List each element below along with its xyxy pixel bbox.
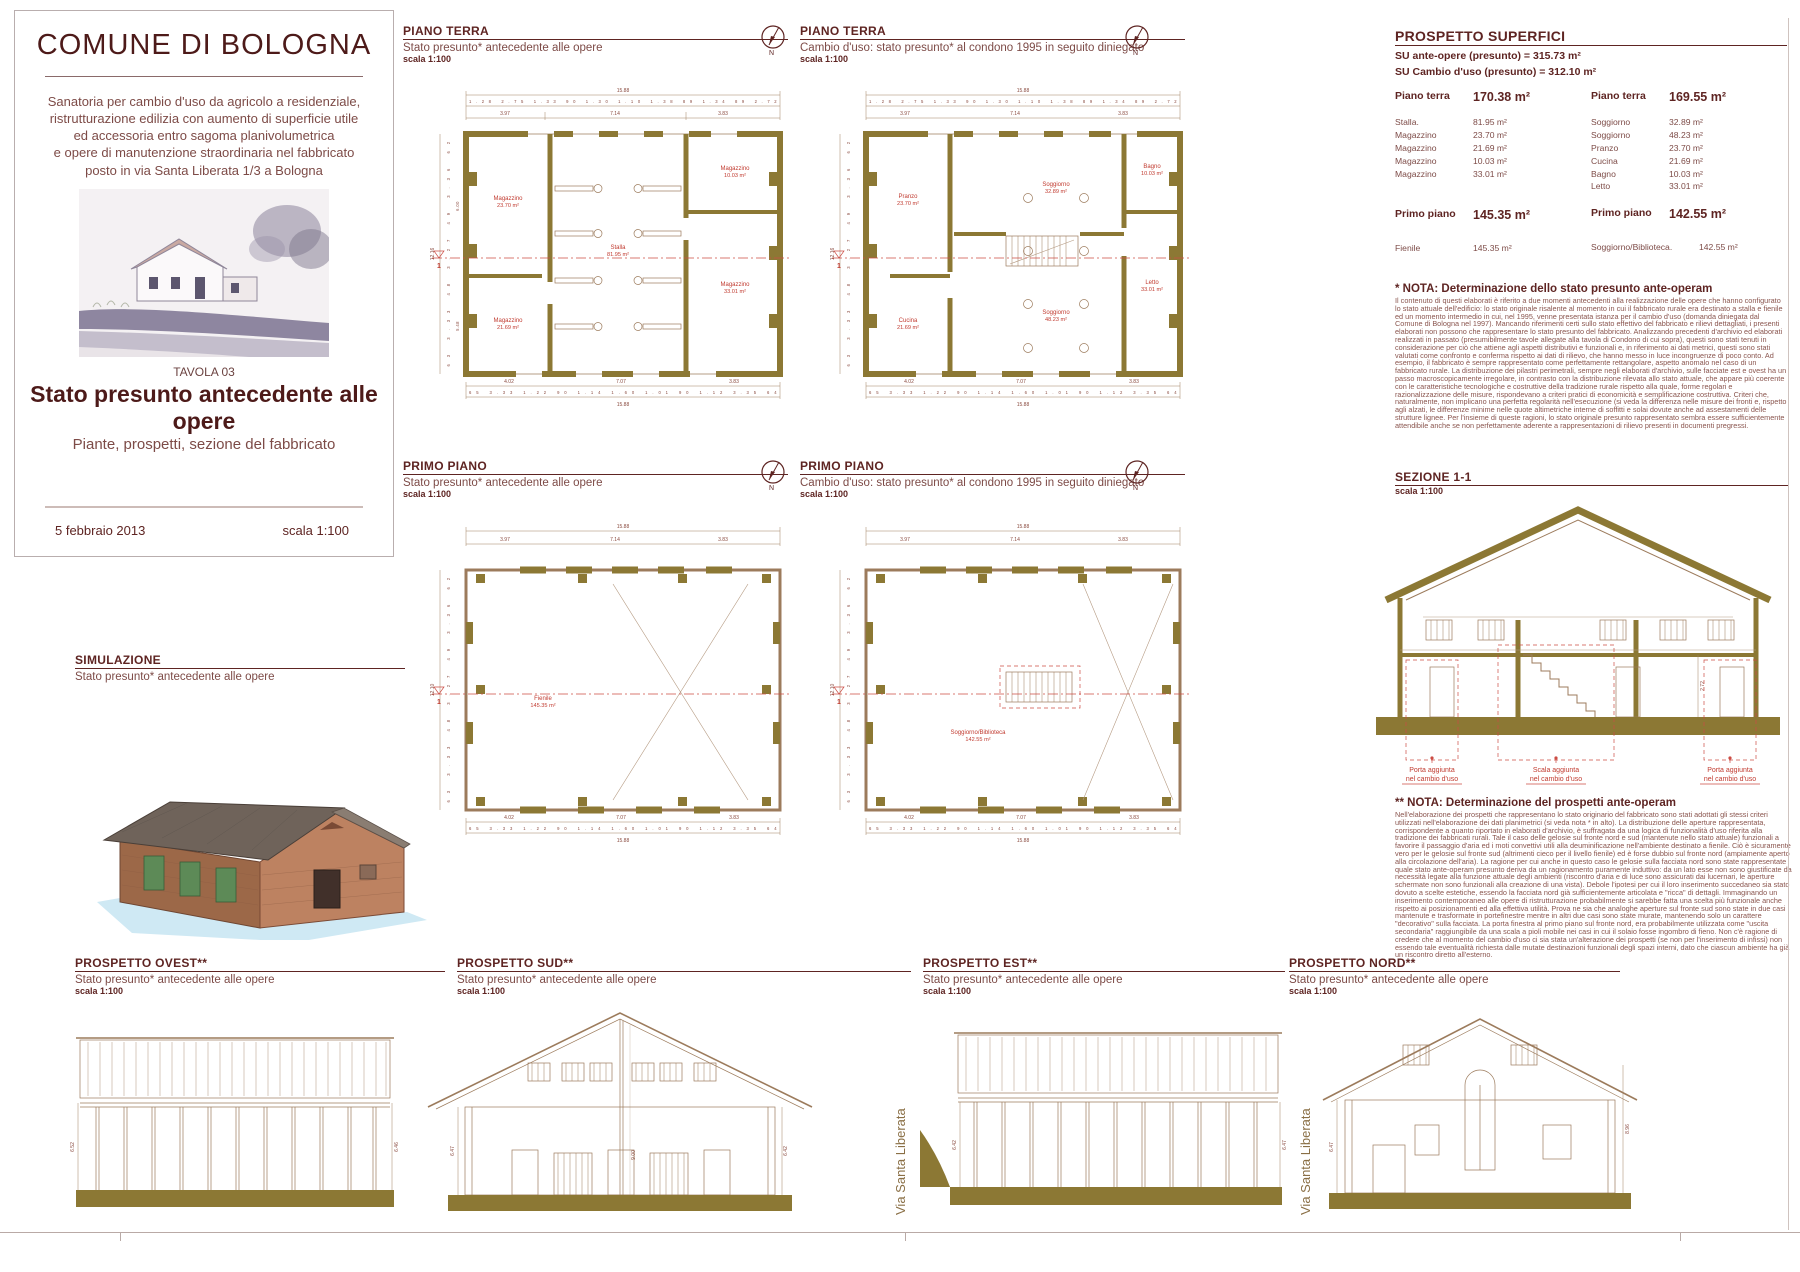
svg-text:N: N [1133,485,1138,491]
section-cut-line: 1 [832,687,1189,706]
gelosie-windows [528,1063,716,1081]
svg-text:32.89 m²: 32.89 m² [1045,189,1067,195]
svg-text:5.48: 5.48 [455,321,460,331]
svg-text:65 3.33 1.22 90 1.14: 65 3.33 1.22 90 1.14 1.60 1.01 90 1.12 3… [469,390,777,395]
svg-text:4.02: 4.02 [904,379,914,385]
svg-text:21.69 m²: 21.69 m² [897,325,919,331]
panel-header-piano-terra-a: PIANO TERRA Stato presunto* antecedente … [403,24,788,64]
svg-text:3.83: 3.83 [718,111,728,117]
svg-text:Soggiorno: Soggiorno [1042,310,1070,316]
svg-text:33.01 m²: 33.01 m² [1141,287,1163,293]
svg-text:Magazzino: Magazzino [493,318,523,324]
svg-text:15.88: 15.88 [1017,838,1030,844]
footer-divider [45,506,363,508]
stair-added [1000,666,1080,708]
svg-text:6.47: 6.47 [450,1146,456,1156]
elevation-nord-drawing: 6.47 8.96 [1315,1005,1645,1220]
svg-text:1: 1 [837,263,841,270]
svg-text:8.96: 8.96 [1625,1124,1631,1134]
svg-text:Stalla: Stalla [610,245,626,251]
svg-text:4.02: 4.02 [504,815,514,821]
svg-text:15.88: 15.88 [617,88,630,94]
svg-text:Bagno: Bagno [1143,164,1161,170]
svg-text:15.88: 15.88 [617,402,630,408]
roof-band [954,1033,1282,1102]
title-divider [45,76,363,77]
nota-stato-presunto: * NOTA: Determinazione dello stato presu… [1395,283,1788,430]
svg-text:7.07: 7.07 [1016,379,1026,385]
sheet-date: 5 febbraio 2013 [55,523,145,538]
svg-text:6.00: 6.00 [455,201,460,211]
svg-text:145.35 m²: 145.35 m² [530,703,555,709]
svg-text:63 3.33 48 3.27 49 3: 63 3.33 48 3.27 49 3.36 62 [846,141,851,366]
svg-text:3.83: 3.83 [1129,815,1139,821]
svg-text:4.02: 4.02 [504,379,514,385]
panel-header-prospetto-est: PROSPETTO EST** Stato presunto* antecede… [923,956,1285,996]
dim-272: 2.72 [1698,655,1706,717]
svg-text:nel cambio d'uso: nel cambio d'uso [1406,776,1458,783]
svg-text:10.03 m²: 10.03 m² [1141,171,1163,177]
svg-text:6.47: 6.47 [1282,1140,1288,1150]
svg-text:65 3.33 1.22 90 1.14: 65 3.33 1.22 90 1.14 1.60 1.01 90 1.12 3… [869,826,1177,831]
svg-text:3.83: 3.83 [729,815,739,821]
doors-section [1430,667,1744,717]
dims: 6.42 6.47 [952,1102,1288,1187]
svg-text:Soggiorno: Soggiorno [1042,182,1070,188]
svg-text:N: N [1133,50,1138,56]
svg-text:Magazzino: Magazzino [720,166,750,172]
svg-text:N: N [769,50,774,56]
superfici-right-column: Piano terra169.55 m² Soggiorno32.89 m² S… [1591,90,1787,255]
elevation-ovest-drawing: 6.52 6.46 [70,1005,400,1220]
svg-text:3.97: 3.97 [500,111,510,117]
sheet-subtitle: Piante, prospetti, sezione del fabbricat… [15,436,393,453]
ground-fill [950,1187,1282,1205]
svg-text:3.83: 3.83 [1129,379,1139,385]
elevation-sud-drawing: 6.47 9.00 6.42 [420,1005,820,1220]
superfici-left-column: Piano terra170.38 m² Stalla.81.95 m² Mag… [1395,90,1591,255]
svg-text:15.88: 15.88 [1017,402,1030,408]
room-labels: Soggiorno/Biblioteca 142.55 m² [950,730,1006,743]
doors-windows [512,1150,730,1195]
panel-header-sezione: SEZIONE 1-1 scala 1:100 [1395,470,1788,496]
roof-brace-x [1083,584,1173,800]
added-elements-annotations: Porta aggiunta nel cambio d'uso Scala ag… [1402,645,1760,784]
svg-text:3.97: 3.97 [900,111,910,117]
plan-primo-piano-cambio-duso: 15.88 3.97 7.14 3.83 12.10 63 3.33 48 3.… [828,522,1193,844]
svg-text:Pranzo: Pranzo [898,194,918,200]
svg-text:3.83: 3.83 [1118,111,1128,117]
columns [96,1107,376,1190]
simulazione-header: SIMULAZIONE Stato presunto* antecedente … [75,653,405,683]
svg-text:3.83: 3.83 [729,379,739,385]
north-arrow-icon: N [760,24,786,56]
ground-fill [448,1195,792,1211]
street-label-via-santa-liberata: Via Santa Liberata [1298,1108,1313,1215]
svg-text:Porta aggiunta: Porta aggiunta [1707,767,1753,774]
section-drawing: 2.72 Porta aggiunta nel cambio d'uso Sca… [1368,495,1788,790]
gelosie-windows [1426,620,1734,640]
plan-piano-terra-cambio-duso: 15.88 1.28 2.75 1.33 90 1.30 1.10 1.38 8… [828,86,1193,408]
svg-text:9.00: 9.00 [631,1150,637,1160]
ground-fill [1376,717,1780,735]
svg-text:4.02: 4.02 [904,815,914,821]
svg-text:15.88: 15.88 [1017,524,1030,530]
svg-text:Soggiorno/Biblioteca: Soggiorno/Biblioteca [950,730,1006,736]
svg-text:nel cambio d'uso: nel cambio d'uso [1530,776,1582,783]
columns [974,1102,1257,1187]
svg-text:6.47: 6.47 [1329,1142,1335,1152]
north-arrow-icon: N [760,459,786,491]
walls [466,567,780,814]
svg-text:48.23 m²: 48.23 m² [1045,317,1067,323]
svg-text:1: 1 [437,263,441,270]
panel-header-primo-piano-a: PRIMO PIANO Stato presunto* antecedente … [403,459,788,499]
svg-text:15.88: 15.88 [1017,88,1030,94]
svg-text:23.70 m²: 23.70 m² [897,201,919,207]
svg-text:Cucina: Cucina [899,318,918,324]
sheet-tick [1680,1233,1681,1241]
road-ramp [920,1130,950,1187]
svg-text:Letto: Letto [1145,280,1159,286]
section-cut-line: 1 [432,687,789,706]
svg-text:Porta aggiunta: Porta aggiunta [1409,767,1455,774]
svg-text:N: N [769,485,774,491]
svg-text:Scala aggiunta: Scala aggiunta [1533,767,1579,774]
dims: 6.47 9.00 6.42 [450,1025,789,1195]
tavola-number: TAVOLA 03 [15,365,393,379]
sheet-bottom-border [0,1232,1800,1233]
svg-text:7.07: 7.07 [616,815,626,821]
svg-text:6.46: 6.46 [394,1142,400,1152]
street-label-via-santa-liberata: Via Santa Liberata [893,1108,908,1215]
panel-header-prospetto-nord: PROSPETTO NORD** Stato presunto* anteced… [1289,956,1620,996]
svg-text:1: 1 [837,699,841,706]
svg-text:nel cambio d'uso: nel cambio d'uso [1704,776,1756,783]
north-arrow-icon: N [1124,459,1150,491]
svg-text:7.14: 7.14 [1010,111,1020,117]
svg-text:1.28 2.75 1.33 90 1.30: 1.28 2.75 1.33 90 1.30 1.10 1.38 89 1.34… [469,99,777,104]
structural-columns [1024,194,1089,353]
sheet-right-border [1788,18,1789,1230]
sheet-main-title: Stato presunto antecedente alle opere [21,381,387,435]
room-labels: Fienile 145.35 m² [530,696,555,709]
svg-text:Magazzino: Magazzino [720,282,750,288]
svg-text:15.88: 15.88 [617,524,630,530]
openings [1373,1070,1571,1193]
svg-text:7.14: 7.14 [610,537,620,543]
svg-text:142.55 m²: 142.55 m² [965,737,990,743]
north-arrow-icon: N [1124,24,1150,56]
sheet-tick [120,1233,121,1241]
dims: 6.52 6.46 [70,1103,400,1190]
ground-fill [76,1190,394,1207]
stair [1006,236,1078,266]
svg-text:10.03 m²: 10.03 m² [724,173,746,179]
plan-piano-terra-stato-presunto: 15.88 1.28 2.75 1.33 90 1.30 1.10 1.38 8… [428,86,793,408]
simulation-render-image [92,690,437,940]
svg-text:Fienile: Fienile [534,696,552,702]
walls [866,129,1180,379]
svg-text:63 3.33 48 3.27 49 3: 63 3.33 48 3.27 49 3.36 62 [846,577,851,802]
plan-primo-piano-stato-presunto: 15.88 3.97 7.14 3.83 12.10 63 3.33 48 3.… [428,522,793,844]
drawing-sheet: COMUNE DI BOLOGNA Sanatoria per cambio d… [0,0,1800,1272]
svg-text:7.07: 7.07 [1016,815,1026,821]
room-labels: Magazzino 23.70 m² Magazzino 21.69 m² St… [493,166,750,331]
svg-text:21.69 m²: 21.69 m² [497,325,519,331]
prospetto-superfici-table: PROSPETTO SUPERFICI SU ante-opere (presu… [1395,28,1787,255]
ground-fill [1329,1193,1631,1209]
title-block: COMUNE DI BOLOGNA Sanatoria per cambio d… [14,10,394,557]
sheet-title: COMUNE DI BOLOGNA [23,29,385,62]
svg-text:6.52: 6.52 [70,1142,76,1152]
roof-band [76,1038,394,1107]
sheet-scale: scala 1:100 [283,523,350,538]
svg-text:3.83: 3.83 [718,537,728,543]
svg-text:7.14: 7.14 [1010,537,1020,543]
elevation-est-drawing: 6.42 6.47 [920,1005,1290,1220]
svg-text:6.42: 6.42 [783,1146,789,1156]
roof-brace-x [613,584,748,800]
svg-text:3.97: 3.97 [900,537,910,543]
svg-text:6.42: 6.42 [952,1140,958,1150]
sheet-tick [905,1233,906,1241]
walls [465,1019,775,1195]
svg-text:63 3.33 48 3.27 49 3: 63 3.33 48 3.27 49 3.36 62 [446,141,451,366]
svg-text:63 3.33 48 3.27 49 3: 63 3.33 48 3.27 49 3.36 62 [446,577,451,802]
svg-text:65 3.33 1.22 90 1.14: 65 3.33 1.22 90 1.14 1.60 1.01 90 1.12 3… [469,826,777,831]
roof [1386,510,1770,600]
svg-text:33.01 m²: 33.01 m² [724,289,746,295]
svg-text:3.83: 3.83 [1118,537,1128,543]
structure [1400,598,1756,717]
project-description: Sanatoria per cambio d'uso da agricolo a… [29,93,379,179]
svg-text:7.14: 7.14 [610,111,620,117]
svg-text:15.88: 15.88 [617,838,630,844]
svg-text:1: 1 [437,699,441,706]
svg-text:23.70 m²: 23.70 m² [497,203,519,209]
panel-header-prospetto-ovest: PROSPETTO OVEST** Stato presunto* antece… [75,956,445,996]
panel-header-prospetto-sud: PROSPETTO SUD** Stato presunto* antecede… [457,956,911,996]
svg-text:2.72: 2.72 [1700,681,1706,691]
svg-text:Magazzino: Magazzino [493,196,523,202]
section-cut-line: 1 [832,251,1189,270]
stair-section [1523,655,1595,717]
nota-prospetti: ** NOTA: Determinazione del prospetti an… [1395,797,1795,959]
svg-text:3.97: 3.97 [500,537,510,543]
svg-text:65 3.33 1.22 90 1.14: 65 3.33 1.22 90 1.14 1.60 1.01 90 1.12 3… [869,390,1177,395]
svg-text:81.95 m²: 81.95 m² [607,252,629,258]
svg-text:1.28 2.75 1.33 90 1.30: 1.28 2.75 1.33 90 1.30 1.10 1.38 89 1.34… [869,99,1177,104]
farmhouse-sketch-image [79,189,329,357]
svg-text:7.07: 7.07 [616,379,626,385]
walls [866,567,1180,814]
